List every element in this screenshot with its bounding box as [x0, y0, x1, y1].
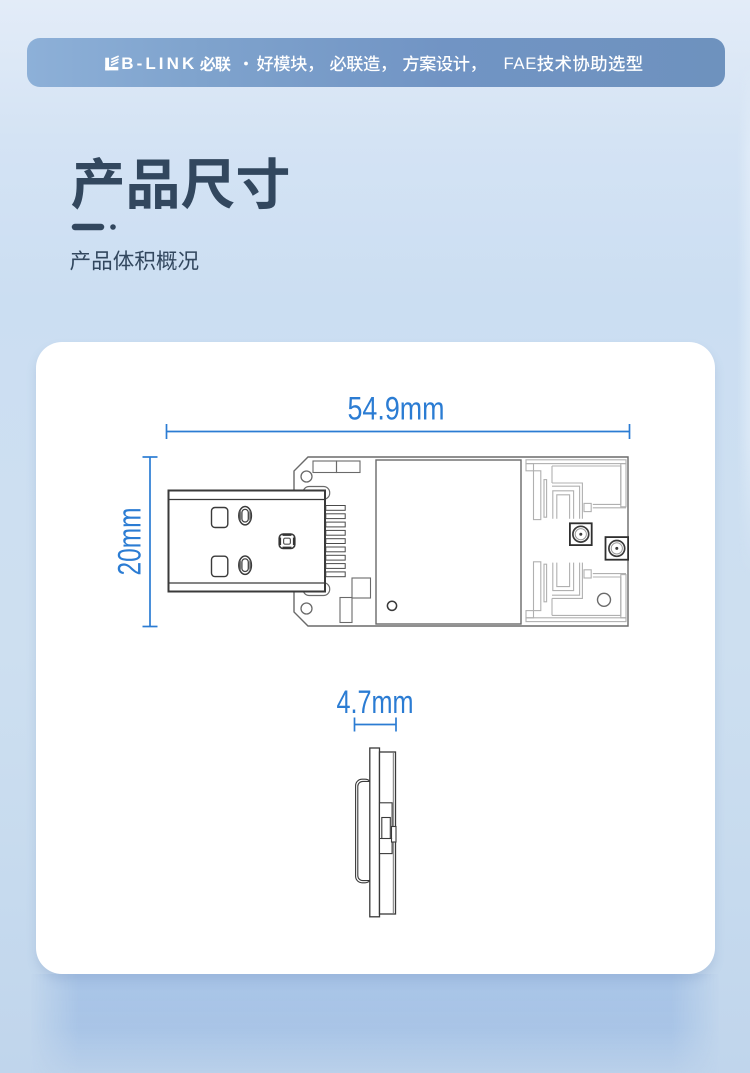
svg-text:54.9mm: 54.9mm [348, 391, 445, 427]
svg-text:4.7mm: 4.7mm [337, 684, 414, 720]
svg-text:20mm: 20mm [112, 508, 148, 576]
